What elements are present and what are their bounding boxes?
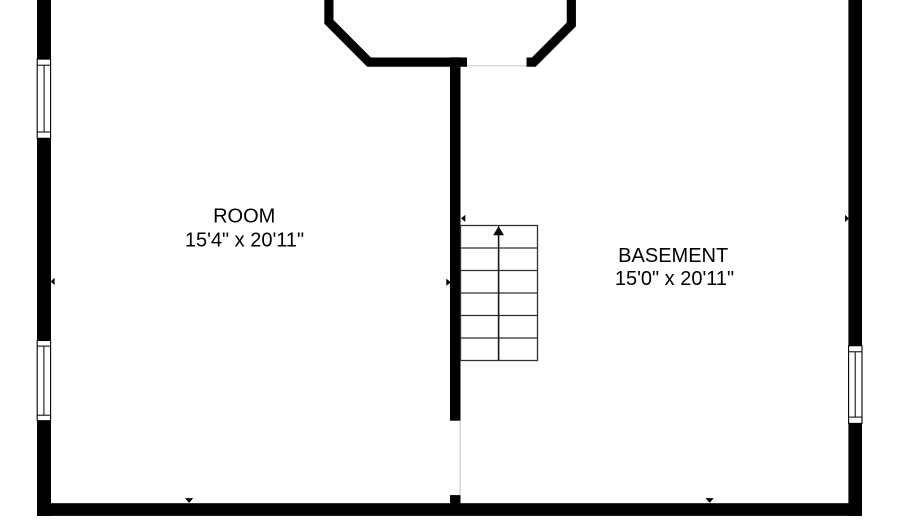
svg-text:15'0" x 20'11": 15'0" x 20'11" [615,268,734,290]
svg-text:BASEMENT: BASEMENT [618,245,728,267]
svg-text:15'4" x 20'11": 15'4" x 20'11" [185,230,304,252]
svg-text:ROOM: ROOM [213,206,275,228]
